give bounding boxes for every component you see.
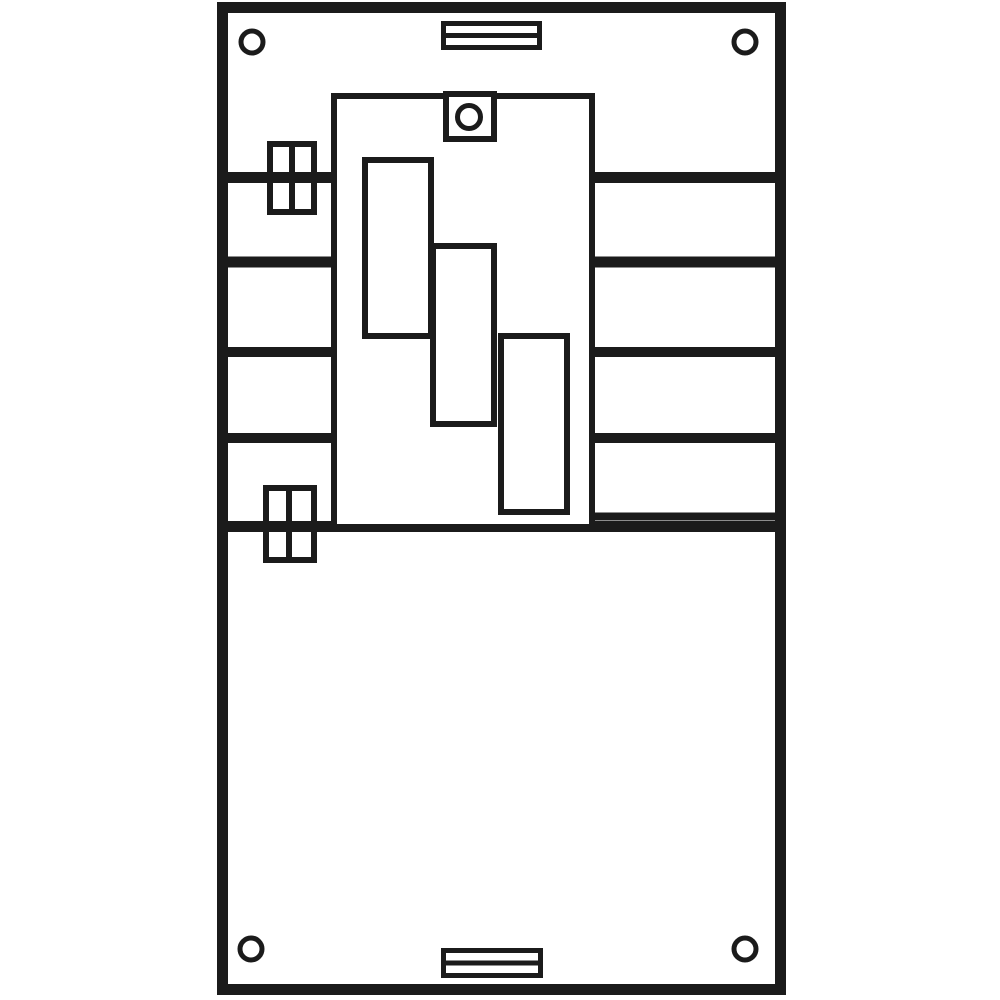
meter-field-3: [501, 336, 567, 512]
panel-drawing-svg: [0, 0, 1000, 1000]
screw-hole-top-left: [241, 31, 263, 53]
screw-hole-bottom-left: [240, 938, 262, 960]
screw-hole-top-right: [734, 31, 756, 53]
meter-field-1: [365, 160, 431, 336]
panel-drawing: [0, 0, 1000, 1000]
screw-hole-bottom-right: [734, 938, 756, 960]
sensor-circle: [458, 106, 481, 129]
meter-field-2: [433, 246, 494, 424]
